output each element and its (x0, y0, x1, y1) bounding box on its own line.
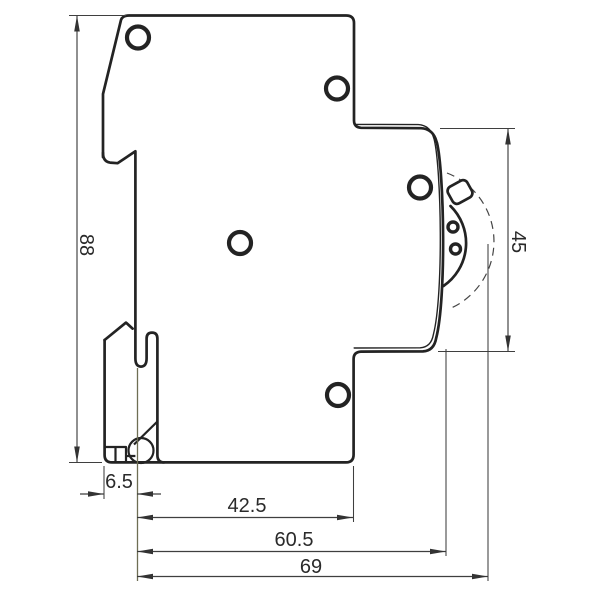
dim-label-45: 45 (507, 231, 529, 253)
clip-spring-box (105, 447, 136, 462)
din-clip (105, 422, 158, 464)
dim-60-5: 60.5 (137, 529, 446, 554)
din-clip-peak (105, 323, 133, 340)
dim-6-5: 6.5 (80, 471, 161, 497)
hole-front (409, 177, 431, 199)
breaker-body-outline (103, 16, 443, 463)
dim-label-6-5: 6.5 (105, 471, 133, 493)
dim-45: 45 (505, 129, 529, 352)
technical-drawing-page: 88 45 6.5 42.5 60.5 69 (0, 0, 600, 600)
dim-88: 88 (74, 16, 97, 463)
hole-top-right (326, 78, 348, 100)
toggle-rivet-lower (451, 244, 461, 254)
toggle-rivet-upper (448, 222, 458, 232)
hole-bottom (327, 384, 349, 406)
hole-center (229, 232, 251, 254)
dim-label-69: 69 (300, 556, 322, 578)
front-step-inner-line (354, 124, 440, 348)
dim-label-60-5: 60.5 (275, 529, 314, 551)
dim-42-5: 42.5 (137, 495, 353, 520)
toggle-switch (444, 178, 475, 286)
mounting-holes (127, 27, 431, 407)
left-notch-and-slot (103, 151, 164, 462)
clip-roller-circle (129, 438, 154, 463)
toggle-handle (446, 178, 474, 205)
dim-69: 69 (137, 556, 488, 579)
dim-label-42-5: 42.5 (228, 495, 267, 517)
breaker-side-profile-drawing: 88 45 6.5 42.5 60.5 69 (0, 0, 600, 600)
hole-top-left (127, 27, 149, 49)
dim-label-88: 88 (75, 234, 97, 256)
